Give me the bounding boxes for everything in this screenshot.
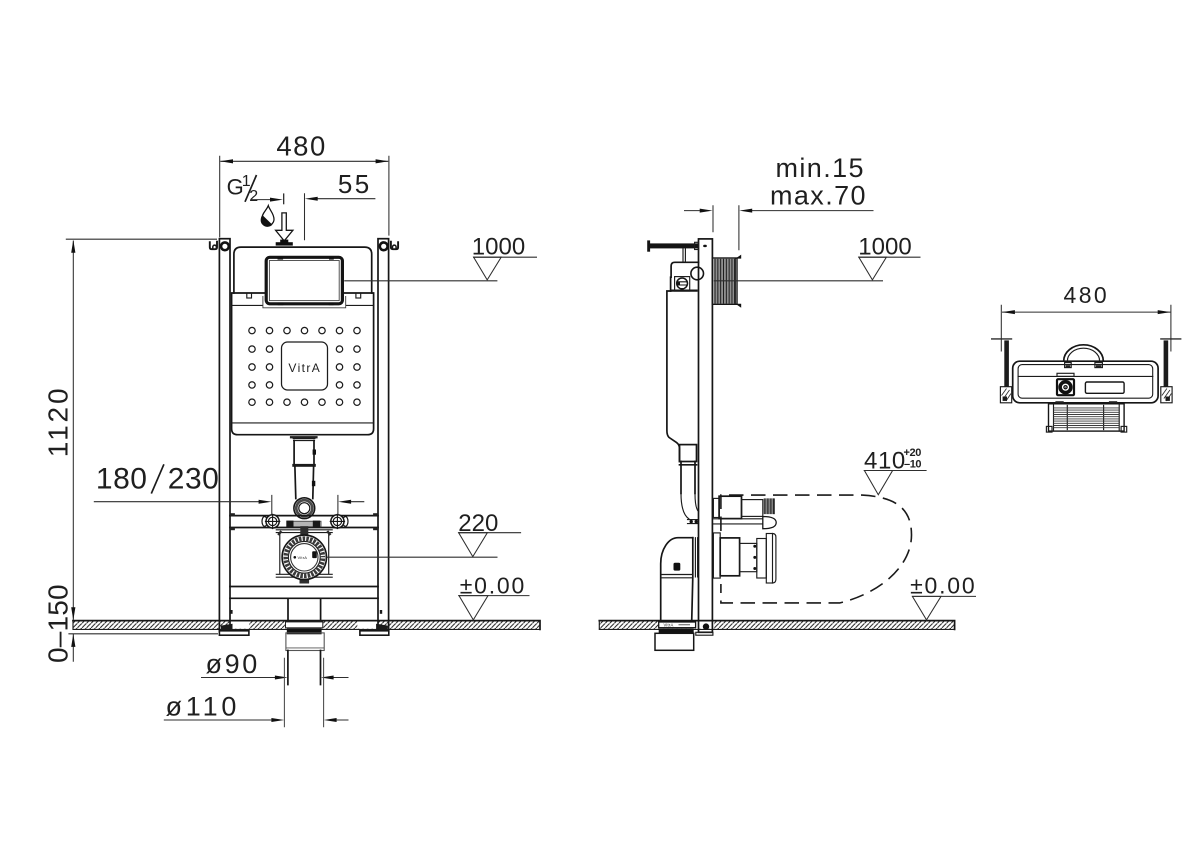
svg-text:1000: 1000 [472,233,525,260]
svg-text:180: 180 [96,462,148,495]
svg-text:VitrA: VitrA [298,555,308,560]
svg-text:max.70: max.70 [770,181,867,211]
svg-text:VitrA: VitrA [288,361,321,375]
svg-text:55: 55 [338,169,372,199]
svg-text:480: 480 [1064,282,1110,308]
svg-text:±0.00: ±0.00 [910,573,976,599]
svg-text:min.15: min.15 [776,153,865,183]
svg-text:220: 220 [458,510,498,537]
svg-text:480: 480 [276,130,326,161]
svg-text:ø90: ø90 [206,649,260,679]
svg-text:–10: –10 [904,458,921,470]
svg-text:0–150: 0–150 [42,584,73,663]
svg-text:1000: 1000 [858,233,911,260]
svg-text:1120: 1120 [42,385,73,457]
svg-text:410: 410 [864,447,906,474]
svg-text:2: 2 [249,188,258,205]
svg-text:VitrA: VitrA [664,623,674,628]
svg-text:+20: +20 [904,447,922,459]
svg-text:±0.00: ±0.00 [460,572,526,598]
svg-text:ø110: ø110 [166,691,241,721]
svg-text:230: 230 [168,462,220,495]
